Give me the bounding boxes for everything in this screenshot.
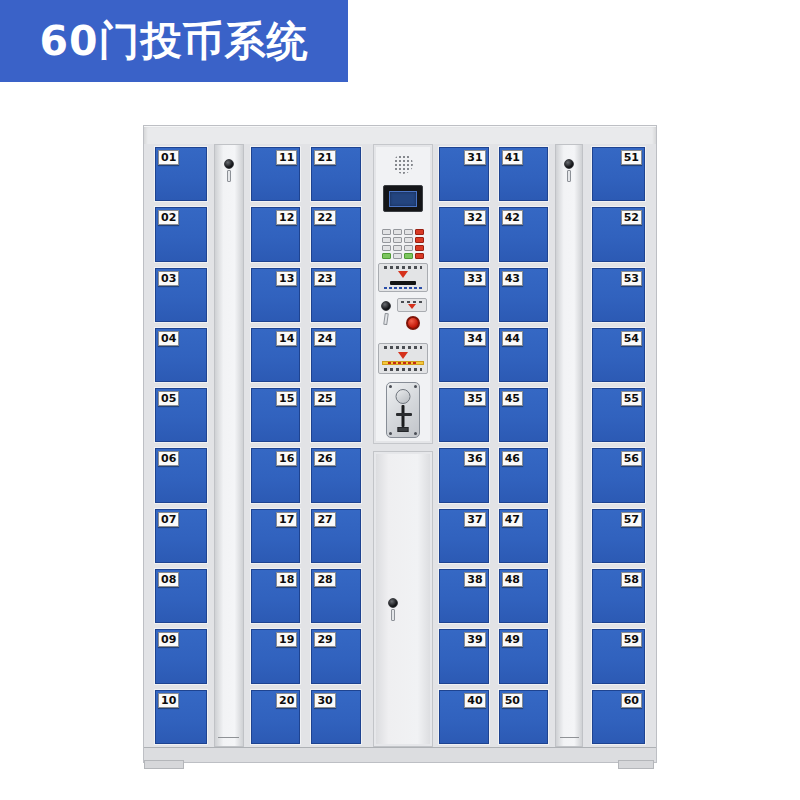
locker-door-41[interactable]: 41 xyxy=(499,147,549,201)
key-lock-icon[interactable] xyxy=(564,159,574,169)
door-number-label: 53 xyxy=(621,271,642,286)
mini-plate-text xyxy=(401,301,423,303)
door-column-doors-51-60: 51525354555657585960 xyxy=(591,144,646,747)
locker-door-17[interactable]: 17 xyxy=(251,509,301,563)
door-cell: 28 xyxy=(310,566,362,626)
door-cell: 50 xyxy=(498,687,550,747)
locker-door-57[interactable]: 57 xyxy=(592,509,645,563)
locker-door-21[interactable]: 21 xyxy=(311,147,361,201)
product-title-badge: 60门投币系统 xyxy=(0,0,348,82)
locker-door-54[interactable]: 54 xyxy=(592,328,645,382)
door-cell: 23 xyxy=(310,265,362,325)
locker-door-55[interactable]: 55 xyxy=(592,388,645,442)
coin-return-slot[interactable] xyxy=(398,427,409,432)
door-column-doors-01-10: 01020304050607080910 xyxy=(154,144,208,747)
coin-return-lever[interactable] xyxy=(396,413,412,416)
door-cell: 21 xyxy=(310,144,362,204)
door-number-label: 30 xyxy=(314,693,335,708)
hanging-key-icon[interactable] xyxy=(383,313,389,325)
card-reader[interactable] xyxy=(378,263,428,292)
cabinet-foot-right xyxy=(618,760,654,769)
locker-door-49[interactable]: 49 xyxy=(499,629,549,683)
locker-door-33[interactable]: 33 xyxy=(439,268,489,322)
door-cell: 51 xyxy=(591,144,646,204)
keypad[interactable] xyxy=(382,229,424,259)
keypad-key-red[interactable] xyxy=(415,253,424,259)
cabinet-foot-left xyxy=(144,760,184,769)
door-number-label: 60 xyxy=(621,693,642,708)
locker-door-01[interactable]: 01 xyxy=(155,147,207,201)
warning-text xyxy=(388,362,418,364)
keypad-key[interactable] xyxy=(404,237,413,243)
door-cell: 49 xyxy=(498,626,550,686)
service-lock-row xyxy=(374,298,432,338)
door-cell: 17 xyxy=(250,506,302,566)
locker-door-29[interactable]: 29 xyxy=(311,629,361,683)
locker-door-34[interactable]: 34 xyxy=(439,328,489,382)
door-cell: 13 xyxy=(250,265,302,325)
door-cell: 30 xyxy=(310,687,362,747)
locker-door-56[interactable]: 56 xyxy=(592,448,645,502)
door-number-label: 02 xyxy=(158,210,179,225)
locker-door-35[interactable]: 35 xyxy=(439,388,489,442)
door-number-label: 22 xyxy=(314,210,335,225)
door-cell: 01 xyxy=(154,144,208,204)
door-cell: 34 xyxy=(438,325,490,385)
door-cell: 58 xyxy=(591,566,646,626)
keypad-key-red[interactable] xyxy=(415,245,424,251)
door-number-label: 42 xyxy=(502,210,523,225)
door-number-label: 45 xyxy=(502,391,523,406)
keypad-key[interactable] xyxy=(404,245,413,251)
locker-door-16[interactable]: 16 xyxy=(251,448,301,502)
locker-door-38[interactable]: 38 xyxy=(439,569,489,623)
door-cell: 38 xyxy=(438,566,490,626)
screw-icon xyxy=(389,432,392,435)
door-number-label: 05 xyxy=(158,391,179,406)
locker-door-43[interactable]: 43 xyxy=(499,268,549,322)
keypad-key[interactable] xyxy=(382,245,391,251)
door-cell: 19 xyxy=(250,626,302,686)
door-cell: 05 xyxy=(154,385,208,445)
locker-door-13[interactable]: 13 xyxy=(251,268,301,322)
keypad-key-green[interactable] xyxy=(404,253,413,259)
door-cell: 22 xyxy=(310,204,362,264)
locker-door-08[interactable]: 08 xyxy=(155,569,207,623)
locker-door-37[interactable]: 37 xyxy=(439,509,489,563)
insert-arrow-icon xyxy=(398,271,408,278)
door-cell: 43 xyxy=(498,265,550,325)
warning-strip xyxy=(382,361,424,365)
keypad-key-green[interactable] xyxy=(382,253,391,259)
master-lock-set xyxy=(564,159,574,182)
lcd-screen xyxy=(383,185,423,212)
coin-slot[interactable] xyxy=(402,405,405,427)
door-number-label: 04 xyxy=(158,331,179,346)
locker-door-28[interactable]: 28 xyxy=(311,569,361,623)
door-column-doors-21-30: 21222324252627282930 xyxy=(310,144,362,747)
door-number-label: 55 xyxy=(621,391,642,406)
door-cell: 03 xyxy=(154,265,208,325)
key-lock-icon[interactable] xyxy=(381,301,391,311)
keypad-key[interactable] xyxy=(393,245,402,251)
master-lock-set xyxy=(224,159,234,182)
door-number-label: 58 xyxy=(621,572,642,587)
door-number-label: 23 xyxy=(314,271,335,286)
door-number-label: 26 xyxy=(314,451,335,466)
door-cell: 60 xyxy=(591,687,646,747)
locker-door-14[interactable]: 14 xyxy=(251,328,301,382)
locker-door-51[interactable]: 51 xyxy=(592,147,645,201)
panel-seam xyxy=(560,737,580,738)
door-cell: 52 xyxy=(591,204,646,264)
door-number-label: 48 xyxy=(502,572,523,587)
door-number-label: 29 xyxy=(314,632,335,647)
door-number-label: 19 xyxy=(276,632,297,647)
locker-door-19[interactable]: 19 xyxy=(251,629,301,683)
door-cell: 11 xyxy=(250,144,302,204)
door-number-label: 40 xyxy=(464,693,485,708)
lock-column-right xyxy=(555,144,583,747)
door-cell: 31 xyxy=(438,144,490,204)
locker-door-12[interactable]: 12 xyxy=(251,207,301,261)
locker-door-53[interactable]: 53 xyxy=(592,268,645,322)
door-cell: 18 xyxy=(250,566,302,626)
door-cell: 15 xyxy=(250,385,302,445)
locker-door-48[interactable]: 48 xyxy=(499,569,549,623)
door-number-label: 43 xyxy=(502,271,523,286)
door-cell: 20 xyxy=(250,687,302,747)
door-cell: 07 xyxy=(154,506,208,566)
locker-cabinet: 01020304050607080910 1112131415161718192… xyxy=(143,125,657,763)
instruction-caption-text xyxy=(384,368,422,371)
door-cell: 45 xyxy=(498,385,550,445)
door-number-label: 49 xyxy=(502,632,523,647)
door-cell: 57 xyxy=(591,506,646,566)
door-cell: 10 xyxy=(154,687,208,747)
locker-door-02[interactable]: 02 xyxy=(155,207,207,261)
coin-acceptor[interactable] xyxy=(386,382,420,438)
door-number-label: 50 xyxy=(502,693,523,708)
door-number-label: 32 xyxy=(464,210,485,225)
locker-door-18[interactable]: 18 xyxy=(251,569,301,623)
door-number-label: 41 xyxy=(502,150,523,165)
door-cell: 14 xyxy=(250,325,302,385)
door-number-label: 24 xyxy=(314,331,335,346)
door-cell: 32 xyxy=(438,204,490,264)
door-number-label: 01 xyxy=(158,150,179,165)
door-column-doors-11-20: 11121314151617181920 xyxy=(250,144,302,747)
door-cell: 16 xyxy=(250,445,302,505)
instruction-plate xyxy=(378,343,428,374)
door-number-label: 11 xyxy=(276,150,297,165)
door-cell: 54 xyxy=(591,325,646,385)
down-arrow-icon xyxy=(408,304,416,309)
coin-return-button[interactable] xyxy=(406,316,420,330)
door-number-label: 12 xyxy=(276,210,297,225)
door-cell: 46 xyxy=(498,445,550,505)
locker-door-04[interactable]: 04 xyxy=(155,328,207,382)
door-number-label: 27 xyxy=(314,512,335,527)
door-number-label: 15 xyxy=(276,391,297,406)
door-cell: 47 xyxy=(498,506,550,566)
door-cell: 25 xyxy=(310,385,362,445)
door-number-label: 57 xyxy=(621,512,642,527)
door-number-label: 35 xyxy=(464,391,485,406)
locker-door-22[interactable]: 22 xyxy=(311,207,361,261)
door-cell: 40 xyxy=(438,687,490,747)
locker-door-06[interactable]: 06 xyxy=(155,448,207,502)
door-number-label: 37 xyxy=(464,512,485,527)
locker-door-09[interactable]: 09 xyxy=(155,629,207,683)
door-number-label: 54 xyxy=(621,331,642,346)
locker-door-50[interactable]: 50 xyxy=(499,690,549,744)
locker-door-47[interactable]: 47 xyxy=(499,509,549,563)
locker-columns: 01020304050607080910 1112131415161718192… xyxy=(144,144,656,747)
door-number-label: 14 xyxy=(276,331,297,346)
locker-door-59[interactable]: 59 xyxy=(592,629,645,683)
door-number-label: 34 xyxy=(464,331,485,346)
door-number-label: 56 xyxy=(621,451,642,466)
control-column xyxy=(373,144,433,747)
door-cell: 37 xyxy=(438,506,490,566)
locker-door-23[interactable]: 23 xyxy=(311,268,361,322)
keypad-key-red[interactable] xyxy=(415,237,424,243)
coin-dial[interactable] xyxy=(396,389,411,404)
locker-door-42[interactable]: 42 xyxy=(499,207,549,261)
locker-door-46[interactable]: 46 xyxy=(499,448,549,502)
locker-door-03[interactable]: 03 xyxy=(155,268,207,322)
card-slot[interactable] xyxy=(390,281,416,285)
mini-instruction-plate xyxy=(397,298,427,312)
screw-icon xyxy=(389,385,392,388)
door-number-label: 16 xyxy=(276,451,297,466)
door-cell: 02 xyxy=(154,204,208,264)
locker-door-27[interactable]: 27 xyxy=(311,509,361,563)
door-number-label: 08 xyxy=(158,572,179,587)
locker-door-11[interactable]: 11 xyxy=(251,147,301,201)
locker-door-20[interactable]: 20 xyxy=(251,690,301,744)
keypad-key[interactable] xyxy=(382,229,391,235)
door-number-label: 10 xyxy=(158,693,179,708)
door-number-label: 28 xyxy=(314,572,335,587)
panel-seam xyxy=(218,737,239,738)
door-cell: 35 xyxy=(438,385,490,445)
keypad-key-red[interactable] xyxy=(415,229,424,235)
door-number-label: 25 xyxy=(314,391,335,406)
door-cell: 27 xyxy=(310,506,362,566)
door-cell: 29 xyxy=(310,626,362,686)
instruction-text-row xyxy=(384,346,422,349)
locker-door-45[interactable]: 45 xyxy=(499,388,549,442)
door-number-label: 38 xyxy=(464,572,485,587)
locker-door-31[interactable]: 31 xyxy=(439,147,489,201)
service-door[interactable] xyxy=(373,451,433,747)
door-cell: 59 xyxy=(591,626,646,686)
door-number-label: 09 xyxy=(158,632,179,647)
door-cell: 41 xyxy=(498,144,550,204)
control-panel xyxy=(373,144,433,444)
door-cell: 09 xyxy=(154,626,208,686)
cabinet-base xyxy=(144,747,656,762)
locker-door-25[interactable]: 25 xyxy=(311,388,361,442)
door-column-doors-31-40: 31323334353637383940 xyxy=(438,144,490,747)
key-lock-icon[interactable] xyxy=(224,159,234,169)
locker-door-30[interactable]: 30 xyxy=(311,690,361,744)
keypad-key[interactable] xyxy=(393,229,402,235)
screw-icon xyxy=(414,385,417,388)
locker-door-05[interactable]: 05 xyxy=(155,388,207,442)
locker-door-10[interactable]: 10 xyxy=(155,690,207,744)
door-cell: 53 xyxy=(591,265,646,325)
locker-door-58[interactable]: 58 xyxy=(592,569,645,623)
door-number-label: 20 xyxy=(276,693,297,708)
locker-door-26[interactable]: 26 xyxy=(311,448,361,502)
door-cell: 44 xyxy=(498,325,550,385)
card-reader-caption-text xyxy=(384,287,422,289)
locker-door-32[interactable]: 32 xyxy=(439,207,489,261)
door-number-label: 31 xyxy=(464,150,485,165)
down-arrow-icon xyxy=(398,352,408,359)
door-number-label: 21 xyxy=(314,150,335,165)
door-cell: 08 xyxy=(154,566,208,626)
door-cell: 24 xyxy=(310,325,362,385)
key-lock-icon[interactable] xyxy=(388,598,398,608)
door-cell: 04 xyxy=(154,325,208,385)
door-number-label: 06 xyxy=(158,451,179,466)
keypad-key[interactable] xyxy=(404,229,413,235)
door-number-label: 36 xyxy=(464,451,485,466)
locker-door-40[interactable]: 40 xyxy=(439,690,489,744)
door-cell: 12 xyxy=(250,204,302,264)
keypad-key[interactable] xyxy=(393,237,402,243)
door-number-label: 03 xyxy=(158,271,179,286)
door-cell: 33 xyxy=(438,265,490,325)
service-door-lock-set xyxy=(388,598,398,621)
door-number-label: 51 xyxy=(621,150,642,165)
door-number-label: 52 xyxy=(621,210,642,225)
locker-door-07[interactable]: 07 xyxy=(155,509,207,563)
hanging-key-icon[interactable] xyxy=(227,170,231,182)
keypad-key[interactable] xyxy=(382,237,391,243)
locker-door-44[interactable]: 44 xyxy=(499,328,549,382)
door-number-label: 59 xyxy=(621,632,642,647)
door-number-label: 33 xyxy=(464,271,485,286)
locker-door-52[interactable]: 52 xyxy=(592,207,645,261)
locker-door-36[interactable]: 36 xyxy=(439,448,489,502)
door-number-label: 44 xyxy=(502,331,523,346)
door-cell: 42 xyxy=(498,204,550,264)
locker-door-15[interactable]: 15 xyxy=(251,388,301,442)
door-cell: 56 xyxy=(591,445,646,505)
door-cell: 39 xyxy=(438,626,490,686)
door-cell: 48 xyxy=(498,566,550,626)
hanging-key-icon[interactable] xyxy=(567,170,571,182)
door-number-label: 47 xyxy=(502,512,523,527)
door-number-label: 13 xyxy=(276,271,297,286)
door-number-label: 17 xyxy=(276,512,297,527)
door-number-label: 18 xyxy=(276,572,297,587)
door-number-label: 46 xyxy=(502,451,523,466)
screw-icon xyxy=(414,432,417,435)
lock-column-left xyxy=(214,144,244,747)
locker-door-60[interactable]: 60 xyxy=(592,690,645,744)
door-cell: 36 xyxy=(438,445,490,505)
locker-door-24[interactable]: 24 xyxy=(311,328,361,382)
door-number-label: 07 xyxy=(158,512,179,527)
keypad-key[interactable] xyxy=(393,253,402,259)
door-cell: 26 xyxy=(310,445,362,505)
door-column-doors-41-50: 41424344454647484950 xyxy=(498,144,550,747)
card-reader-instruction-text xyxy=(384,266,422,269)
hanging-key-icon[interactable] xyxy=(391,609,395,621)
locker-door-39[interactable]: 39 xyxy=(439,629,489,683)
door-number-label: 39 xyxy=(464,632,485,647)
door-cell: 55 xyxy=(591,385,646,445)
lcd-screen-display xyxy=(389,191,417,207)
door-cell: 06 xyxy=(154,445,208,505)
speaker-grille-icon xyxy=(393,154,413,174)
